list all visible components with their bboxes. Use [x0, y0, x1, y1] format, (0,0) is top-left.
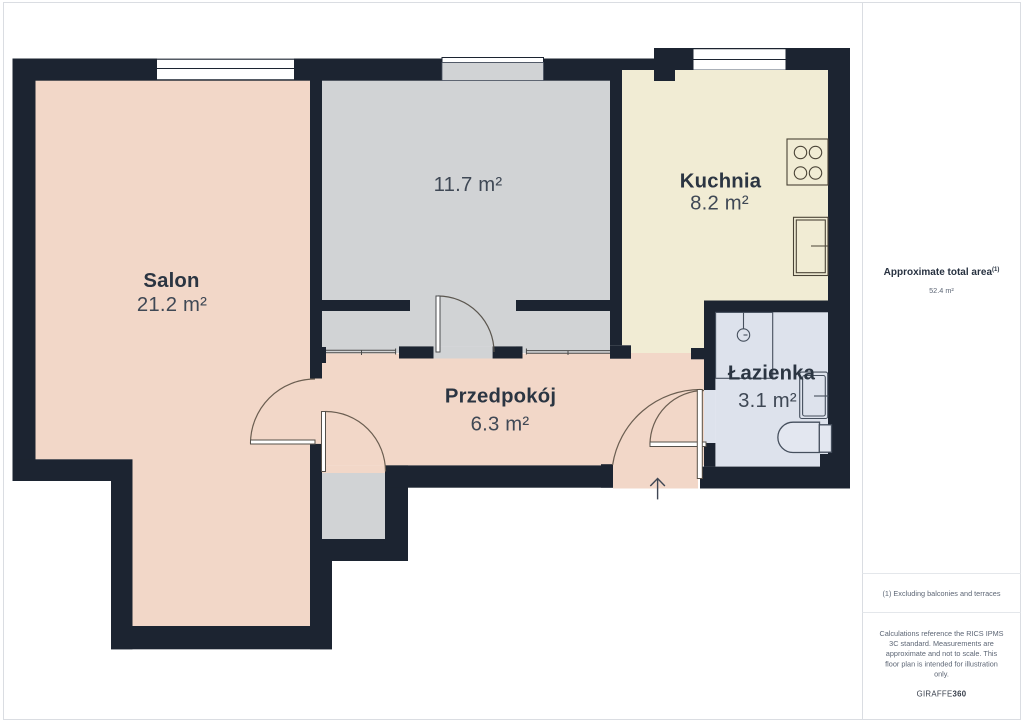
svg-text:only.: only. — [934, 670, 949, 679]
svg-text:3C standard. Measurements are: 3C standard. Measurements are — [889, 639, 994, 648]
svg-text:52.4 m²: 52.4 m² — [929, 286, 954, 295]
svg-text:3.1 m²: 3.1 m² — [738, 390, 797, 412]
svg-text:6.3 m²: 6.3 m² — [471, 414, 530, 436]
svg-text:Przedpokój: Przedpokój — [445, 386, 556, 408]
svg-text:(1) Excluding balconies and te: (1) Excluding balconies and terraces — [882, 589, 1000, 598]
svg-text:Kuchnia: Kuchnia — [680, 171, 762, 193]
svg-text:11.7 m²: 11.7 m² — [434, 174, 503, 196]
svg-text:Łazienka: Łazienka — [728, 363, 816, 385]
svg-text:Calculations reference the RIC: Calculations reference the RICS IPMS — [879, 629, 1003, 638]
svg-text:8.2 m²: 8.2 m² — [690, 193, 749, 215]
svg-text:Salon: Salon — [143, 270, 199, 292]
svg-text:21.2 m²: 21.2 m² — [137, 294, 207, 316]
svg-text:GIRAFFE360: GIRAFFE360 — [917, 690, 967, 699]
svg-text:Approximate total area(1): Approximate total area(1) — [884, 267, 1000, 278]
svg-text:approximate and not to scale.: approximate and not to scale. This — [886, 649, 998, 658]
svg-text:floor plan is intended for ill: floor plan is intended for illustration — [885, 659, 998, 668]
